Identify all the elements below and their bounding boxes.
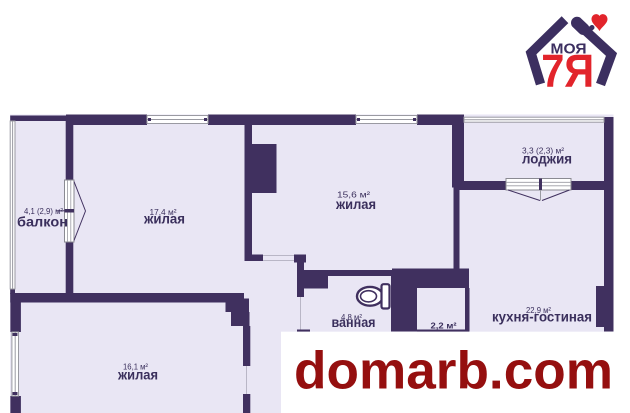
svg-text:кухня-гостиная: кухня-гостиная — [492, 309, 592, 325]
svg-text:лоджия: лоджия — [522, 151, 572, 167]
svg-text:балкон: балкон — [17, 214, 68, 230]
svg-text:жилая: жилая — [117, 367, 158, 383]
svg-text:7Я: 7Я — [541, 44, 594, 96]
svg-text:domarb.com: domarb.com — [294, 342, 613, 401]
svg-text:2,2 м²: 2,2 м² — [431, 321, 457, 331]
svg-text:жилая: жилая — [143, 211, 185, 227]
svg-text:жилая: жилая — [335, 196, 376, 212]
svg-text:ванная: ванная — [332, 314, 376, 330]
